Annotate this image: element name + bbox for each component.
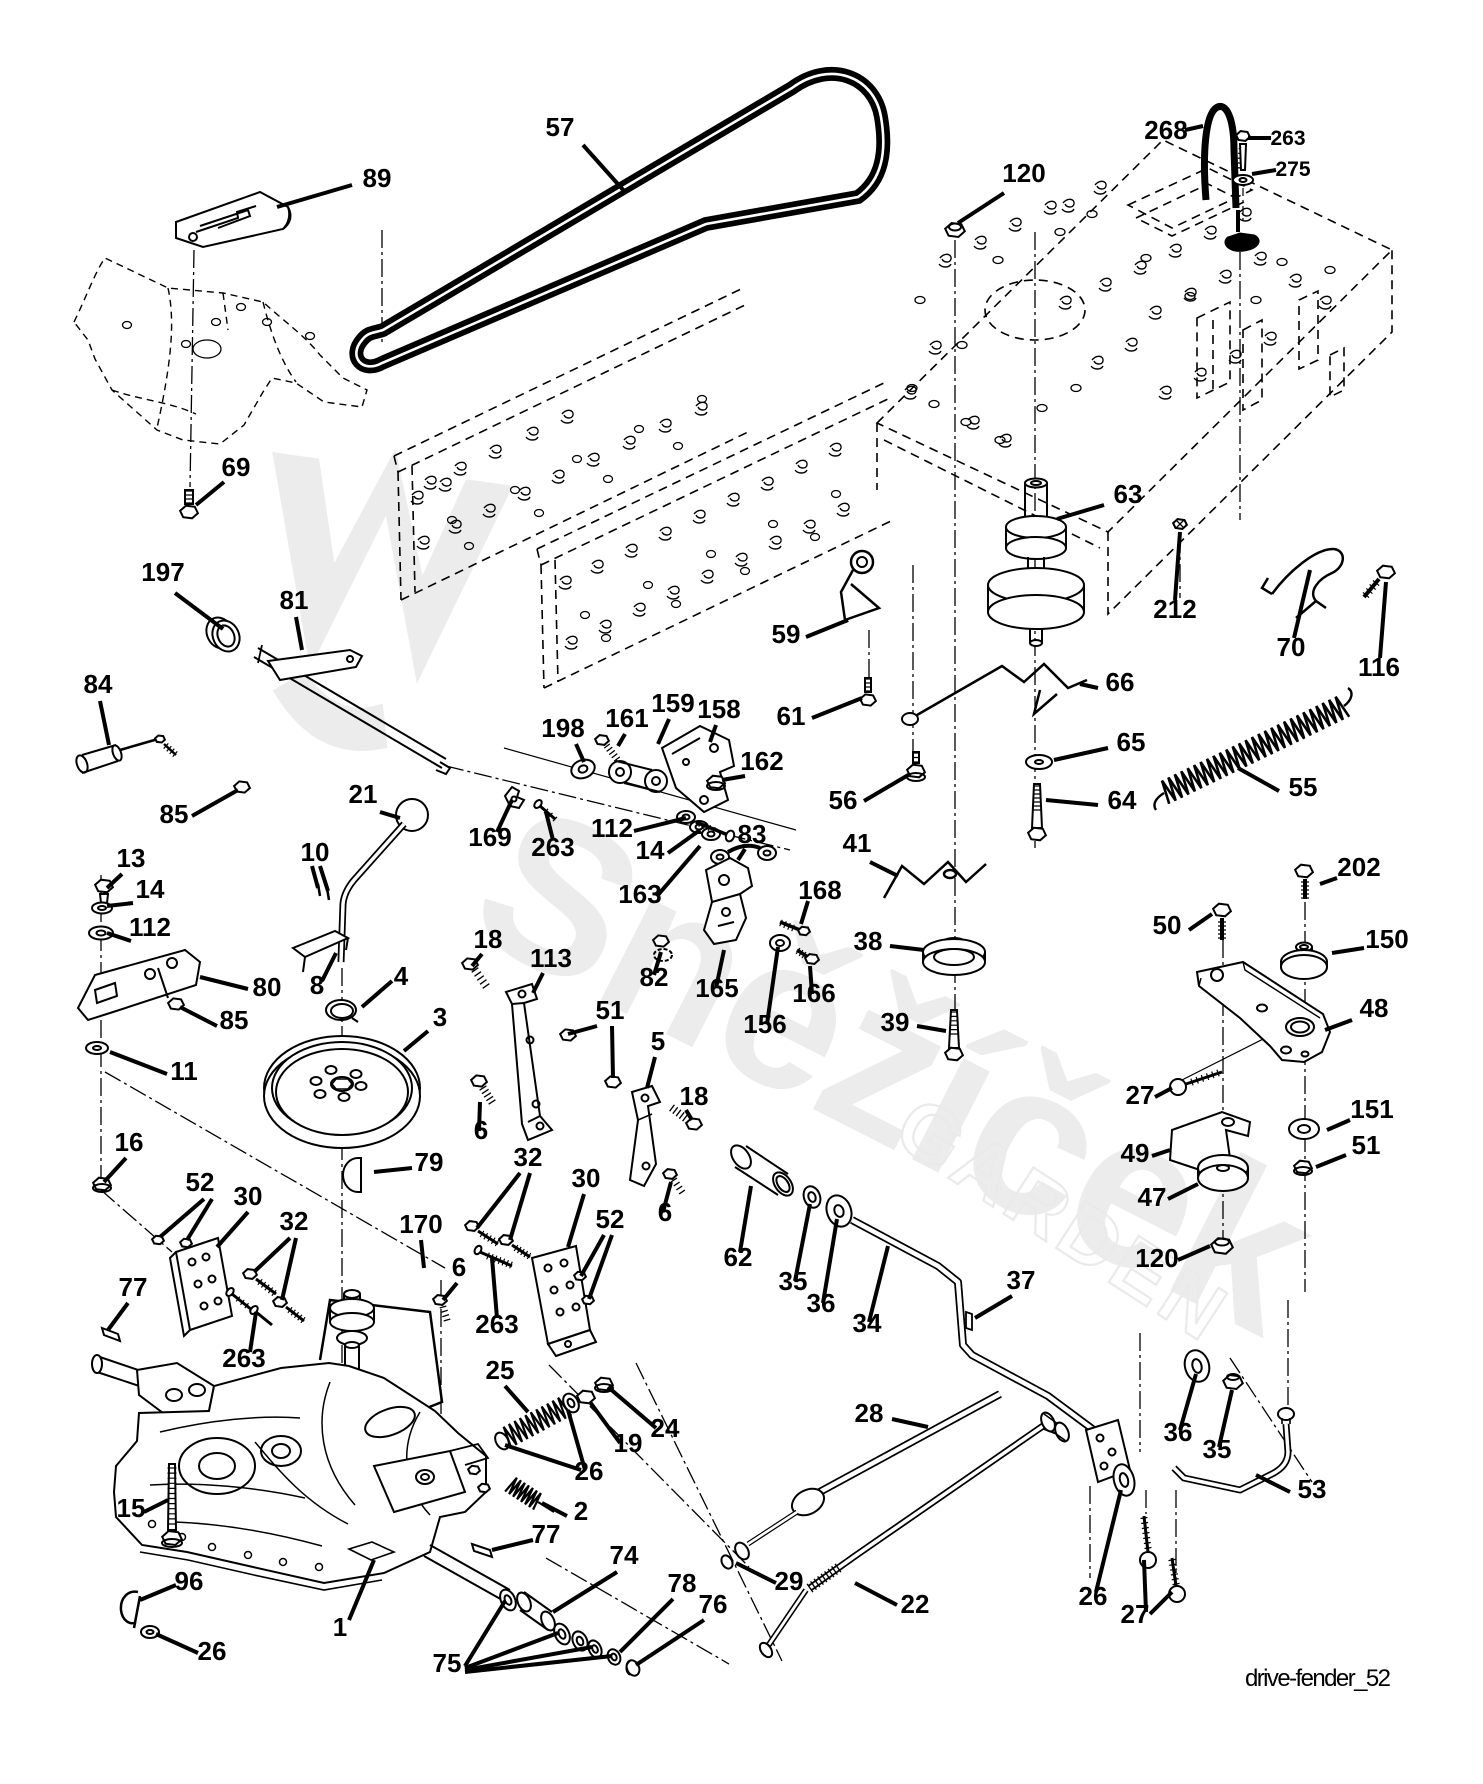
svg-text:75: 75 (433, 1648, 462, 1678)
svg-text:50: 50 (1153, 910, 1182, 940)
svg-text:4: 4 (394, 961, 409, 991)
svg-text:18: 18 (680, 1081, 709, 1111)
svg-text:18: 18 (474, 924, 503, 954)
svg-text:59: 59 (772, 619, 801, 649)
svg-text:49: 49 (1121, 1138, 1150, 1168)
svg-text:47: 47 (1138, 1182, 1167, 1212)
svg-text:120: 120 (1135, 1243, 1178, 1273)
svg-text:197: 197 (141, 557, 184, 587)
svg-text:26: 26 (198, 1636, 227, 1666)
svg-text:89: 89 (363, 163, 392, 193)
svg-text:36: 36 (807, 1288, 836, 1318)
svg-text:3: 3 (433, 1002, 447, 1032)
svg-text:30: 30 (572, 1163, 601, 1193)
svg-text:212: 212 (1153, 594, 1196, 624)
svg-text:37: 37 (1007, 1265, 1036, 1295)
svg-text:2: 2 (574, 1496, 588, 1526)
svg-text:275: 275 (1275, 158, 1310, 181)
svg-text:263: 263 (1270, 127, 1305, 150)
svg-text:19: 19 (614, 1428, 643, 1458)
svg-text:83: 83 (738, 819, 767, 849)
svg-text:112: 112 (129, 912, 171, 942)
svg-text:159: 159 (651, 688, 694, 718)
svg-text:120: 120 (1002, 158, 1045, 188)
svg-text:81: 81 (280, 585, 309, 615)
svg-text:25: 25 (486, 1355, 515, 1385)
svg-text:32: 32 (280, 1206, 309, 1236)
svg-text:82: 82 (640, 962, 669, 992)
svg-text:29: 29 (775, 1566, 804, 1596)
svg-text:6: 6 (474, 1115, 488, 1145)
svg-text:84: 84 (84, 669, 113, 699)
svg-text:66: 66 (1106, 667, 1135, 697)
svg-text:drive-fender_52: drive-fender_52 (1245, 1665, 1391, 1692)
svg-text:77: 77 (532, 1519, 561, 1549)
svg-text:14: 14 (636, 835, 665, 865)
svg-text:78: 78 (668, 1568, 697, 1598)
svg-text:39: 39 (881, 1007, 910, 1037)
svg-text:13: 13 (117, 843, 146, 873)
svg-text:32: 32 (514, 1142, 543, 1172)
svg-text:8: 8 (310, 970, 324, 1000)
svg-text:169: 169 (468, 822, 511, 852)
svg-text:10: 10 (301, 837, 330, 867)
svg-text:198: 198 (541, 713, 584, 743)
svg-text:26: 26 (1079, 1581, 1108, 1611)
svg-text:51: 51 (596, 995, 625, 1025)
svg-text:116: 116 (1358, 652, 1400, 682)
svg-text:55: 55 (1289, 772, 1318, 802)
svg-text:77: 77 (119, 1272, 148, 1302)
svg-text:156: 156 (743, 1009, 786, 1039)
svg-text:27: 27 (1126, 1080, 1155, 1110)
svg-text:36: 36 (1164, 1417, 1193, 1447)
svg-text:151: 151 (1350, 1094, 1393, 1124)
svg-text:263: 263 (222, 1343, 265, 1373)
svg-text:6: 6 (658, 1197, 672, 1227)
svg-text:170: 170 (399, 1209, 442, 1239)
svg-text:80: 80 (253, 972, 282, 1002)
svg-text:76: 76 (699, 1589, 728, 1619)
svg-text:16: 16 (115, 1127, 144, 1157)
svg-text:263: 263 (531, 832, 574, 862)
svg-text:21: 21 (349, 779, 378, 809)
svg-text:14: 14 (136, 874, 165, 904)
svg-text:61: 61 (777, 701, 806, 731)
svg-text:65: 65 (1117, 727, 1146, 757)
svg-text:268: 268 (1144, 115, 1187, 145)
svg-text:112: 112 (591, 813, 633, 843)
svg-text:163: 163 (618, 879, 661, 909)
svg-text:158: 158 (697, 694, 740, 724)
svg-text:41: 41 (843, 828, 872, 858)
svg-text:28: 28 (855, 1398, 884, 1428)
svg-text:69: 69 (222, 452, 251, 482)
svg-text:35: 35 (1203, 1434, 1232, 1464)
svg-text:6: 6 (452, 1252, 466, 1282)
svg-text:30: 30 (234, 1181, 263, 1211)
svg-text:63: 63 (1114, 479, 1143, 509)
svg-text:113: 113 (530, 943, 572, 973)
svg-text:79: 79 (415, 1147, 444, 1177)
svg-text:34: 34 (853, 1308, 882, 1338)
svg-text:85: 85 (220, 1005, 249, 1035)
svg-text:62: 62 (724, 1242, 753, 1272)
svg-text:85: 85 (160, 799, 189, 829)
svg-text:56: 56 (829, 785, 858, 815)
svg-text:15: 15 (117, 1493, 146, 1523)
svg-text:57: 57 (546, 112, 575, 142)
svg-text:27: 27 (1121, 1599, 1150, 1629)
svg-text:38: 38 (854, 926, 883, 956)
svg-text:74: 74 (610, 1540, 639, 1570)
svg-text:35: 35 (779, 1266, 808, 1296)
svg-text:1: 1 (333, 1612, 347, 1642)
svg-text:202: 202 (1337, 852, 1380, 882)
svg-text:53: 53 (1298, 1474, 1327, 1504)
svg-text:150: 150 (1365, 924, 1408, 954)
svg-text:263: 263 (475, 1309, 518, 1339)
svg-text:70: 70 (1277, 632, 1306, 662)
svg-text:24: 24 (651, 1413, 680, 1443)
svg-text:96: 96 (175, 1566, 204, 1596)
svg-text:166: 166 (792, 978, 835, 1008)
svg-text:51: 51 (1352, 1130, 1381, 1160)
svg-text:52: 52 (596, 1204, 625, 1234)
svg-text:5: 5 (651, 1026, 665, 1056)
svg-text:52: 52 (186, 1167, 215, 1197)
svg-text:168: 168 (798, 875, 841, 905)
svg-text:64: 64 (1108, 785, 1137, 815)
svg-text:165: 165 (695, 973, 738, 1003)
svg-text:48: 48 (1360, 993, 1389, 1023)
svg-text:11: 11 (170, 1056, 198, 1086)
svg-text:162: 162 (740, 746, 783, 776)
svg-text:22: 22 (901, 1589, 930, 1619)
svg-text:26: 26 (575, 1456, 604, 1486)
svg-text:161: 161 (605, 703, 648, 733)
